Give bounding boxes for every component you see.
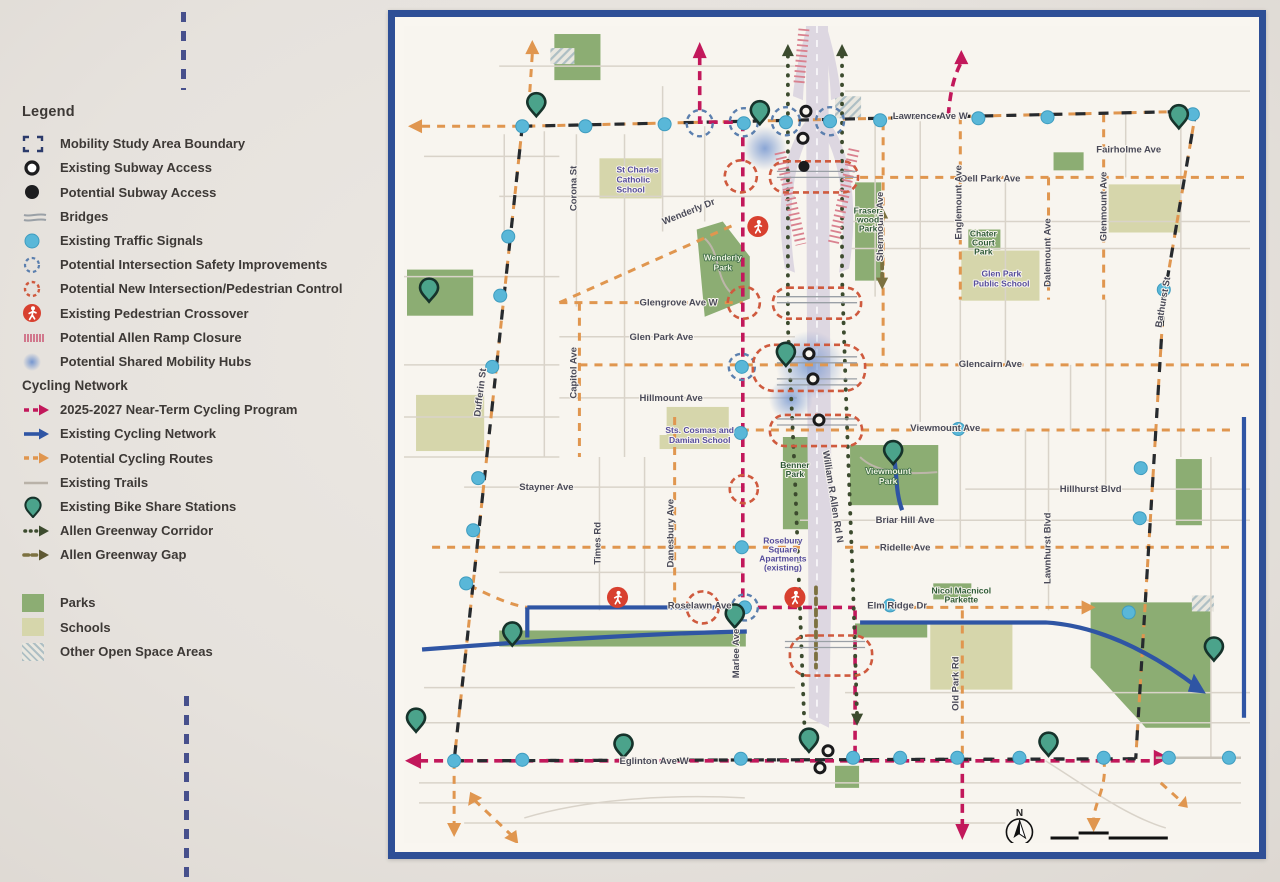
- legend-item-shared-mobility: Potential Shared Mobility Hubs: [22, 350, 384, 374]
- legend-item-greenway-gap: Allen Greenway Gap: [22, 543, 384, 567]
- boundary-corners-icon: [22, 135, 60, 153]
- legend-title: Legend: [22, 104, 384, 120]
- legend-item-bike-share: Existing Bike Share Stations: [22, 495, 384, 519]
- north-arrow: N: [1006, 808, 1032, 843]
- legend-item-parks: Parks: [22, 591, 384, 615]
- legend-item-new-intersection: Potential New Intersection/Pedestrian Co…: [22, 277, 384, 301]
- label-hillmount: Hillmount Ave: [640, 393, 703, 404]
- gray-line-icon: [22, 476, 60, 490]
- legend-item-traffic-signals: Existing Traffic Signals: [22, 229, 384, 253]
- label-wenderly-park: Wenderly: [704, 253, 742, 263]
- map-canvas: Lawrence Ave W Fairholme Ave Dell Park A…: [404, 26, 1250, 843]
- eglinton-boundary-overlay: [454, 759, 1136, 761]
- traffic-signal-dot-icon: [22, 232, 60, 250]
- label-dufferin: Dufferin St: [472, 367, 489, 417]
- label-bathurst: Bathurst St: [1153, 275, 1173, 328]
- svg-text:Parkette: Parkette: [945, 594, 979, 604]
- page-dashed-line-bottom: [184, 696, 189, 878]
- legend-item-greenway-corridor: Allen Greenway Corridor: [22, 519, 384, 543]
- legend-item-existing-cycling: Existing Cycling Network: [22, 422, 384, 446]
- legend-item-open-space: Other Open Space Areas: [22, 640, 384, 664]
- legend-item-potential-routes: Potential Cycling Routes: [22, 446, 384, 470]
- crimson-dashed-arrow-icon: [22, 403, 60, 417]
- legend-item-near-term-cycling: 2025-2027 Near-Term Cycling Program: [22, 398, 384, 422]
- olive-dashed-arrow-icon: [22, 548, 60, 562]
- legend-cycling-header: Cycling Network: [22, 374, 384, 398]
- svg-text:Park: Park: [879, 476, 898, 486]
- legend-item-existing-trails: Existing Trails: [22, 470, 384, 494]
- label-sts-cosmas: Sts. Cosmas and: [665, 425, 734, 435]
- label-lawnhurst: Lawnhurst Blvd: [1043, 512, 1054, 584]
- legend-item-pedestrian-crossover: Existing Pedestrian Crossover: [22, 301, 384, 325]
- page-dashed-line-top: [181, 12, 186, 90]
- label-glencairn: Glencairn Ave: [959, 359, 1022, 370]
- legend-item-safety-improvements: Potential Intersection Safety Improvemen…: [22, 253, 384, 277]
- svg-text:100: 100: [1072, 842, 1089, 843]
- legend-item-potential-subway: Potential Subway Access: [22, 180, 384, 204]
- filled-circle-icon: [22, 183, 60, 201]
- legend-item-ramp-closure: Potential Allen Ramp Closure: [22, 326, 384, 350]
- label-wenderly-dr: Wenderly Dr: [661, 196, 717, 227]
- open-circle-icon: [22, 159, 60, 177]
- label-eglinton: Eglinton Ave W: [620, 756, 689, 767]
- svg-text:Damian School: Damian School: [669, 435, 731, 445]
- schools-swatch: [22, 618, 60, 636]
- svg-text:N: N: [1016, 808, 1023, 819]
- red-dashed-circle-icon: [22, 280, 60, 298]
- label-danesbury: Danesbury Ave: [666, 499, 677, 568]
- pedestrian-crossover-icon: [22, 303, 60, 323]
- label-briar-hill: Briar Hill Ave: [876, 515, 935, 526]
- svg-text:(existing): (existing): [764, 562, 802, 572]
- label-st-charles: St Charles: [617, 164, 659, 174]
- open-space-swatch: [22, 643, 60, 661]
- label-marlee: Marlee Ave: [731, 629, 742, 679]
- label-hillhurst: Hillhurst Blvd: [1060, 484, 1122, 495]
- schools: [416, 158, 1181, 689]
- label-roselawn: Roselawn Ave: [668, 600, 732, 611]
- label-dell-park: Dell Park Ave: [960, 173, 1020, 184]
- map-frame: Lawrence Ave W Fairholme Ave Dell Park A…: [388, 10, 1266, 859]
- label-glen-park-school: Glen Park: [982, 269, 1022, 279]
- svg-text:0: 0: [1048, 842, 1054, 843]
- label-corona: Corona St: [568, 165, 579, 211]
- legend-item-schools: Schools: [22, 615, 384, 639]
- olive-dotted-arrow-icon: [22, 524, 60, 538]
- label-ridelle: Ridelle Ave: [880, 542, 931, 553]
- svg-text:Park: Park: [974, 247, 993, 257]
- blue-dashed-circle-icon: [22, 256, 60, 274]
- label-glen-park-ave: Glen Park Ave: [630, 332, 694, 343]
- scale-bar: 0 100 200 400 metres: [1048, 833, 1211, 843]
- parks-swatch: [22, 594, 60, 612]
- legend-item-bridges: Bridges: [22, 205, 384, 229]
- legend: Legend Mobility Study Area Boundary Exis…: [22, 104, 384, 664]
- orange-dashed-arrow-icon: [22, 451, 60, 465]
- open-space-areas: [550, 48, 1214, 611]
- label-glengrove: Glengrove Ave W: [640, 298, 718, 309]
- label-viewmount-park: Viewmount: [866, 466, 911, 476]
- svg-text:Public School: Public School: [973, 279, 1029, 289]
- svg-text:400 metres: 400 metres: [1158, 842, 1211, 843]
- svg-text:Park: Park: [786, 469, 805, 479]
- label-lawrence: Lawrence Ave W: [893, 111, 968, 122]
- bridge-lines-icon: [22, 208, 60, 226]
- label-viewmount-ave: Viewmount Ave: [910, 423, 980, 434]
- label-stayner: Stayner Ave: [519, 482, 573, 493]
- svg-text:200: 200: [1102, 842, 1119, 843]
- svg-text:School: School: [617, 184, 645, 194]
- bike-share-pin-icon: [22, 496, 60, 518]
- blue-blur-icon: [22, 353, 60, 371]
- label-capitol: Capitol Ave: [568, 347, 579, 399]
- blue-arrow-icon: [22, 427, 60, 441]
- printed-map-page: { "legend": { "title": "Legend", "items"…: [0, 0, 1280, 882]
- legend-item-existing-subway: Existing Subway Access: [22, 156, 384, 180]
- pink-hatch-icon: [22, 329, 60, 347]
- svg-text:Park: Park: [859, 224, 878, 234]
- label-englemount: Englemount Ave: [953, 165, 964, 239]
- svg-text:Park: Park: [714, 263, 733, 273]
- label-dalemount: Dalemount Ave: [1043, 218, 1054, 287]
- svg-text:Catholic: Catholic: [617, 174, 651, 184]
- label-fairholme: Fairholme Ave: [1096, 144, 1161, 155]
- label-glenmount: Glenmount Ave: [1099, 172, 1110, 242]
- label-elm-ridge: Elm Ridge Dr: [867, 600, 927, 611]
- label-old-park: Old Park Rd: [950, 656, 961, 711]
- label-times: Times Rd: [592, 522, 603, 565]
- legend-item-boundary: Mobility Study Area Boundary: [22, 132, 384, 156]
